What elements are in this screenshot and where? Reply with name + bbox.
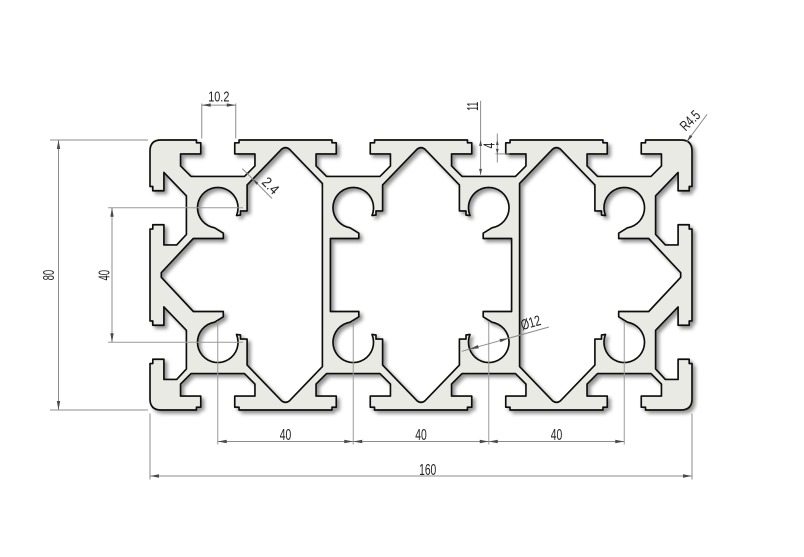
svg-text:4: 4 — [482, 142, 499, 148]
svg-text:80: 80 — [41, 270, 58, 281]
svg-text:11: 11 — [465, 102, 482, 111]
svg-text:40: 40 — [280, 427, 292, 444]
svg-text:160: 160 — [419, 462, 436, 479]
svg-text:40: 40 — [415, 427, 427, 444]
svg-text:40: 40 — [551, 427, 563, 444]
svg-text:10.2: 10.2 — [208, 90, 229, 106]
svg-text:40: 40 — [97, 270, 114, 281]
